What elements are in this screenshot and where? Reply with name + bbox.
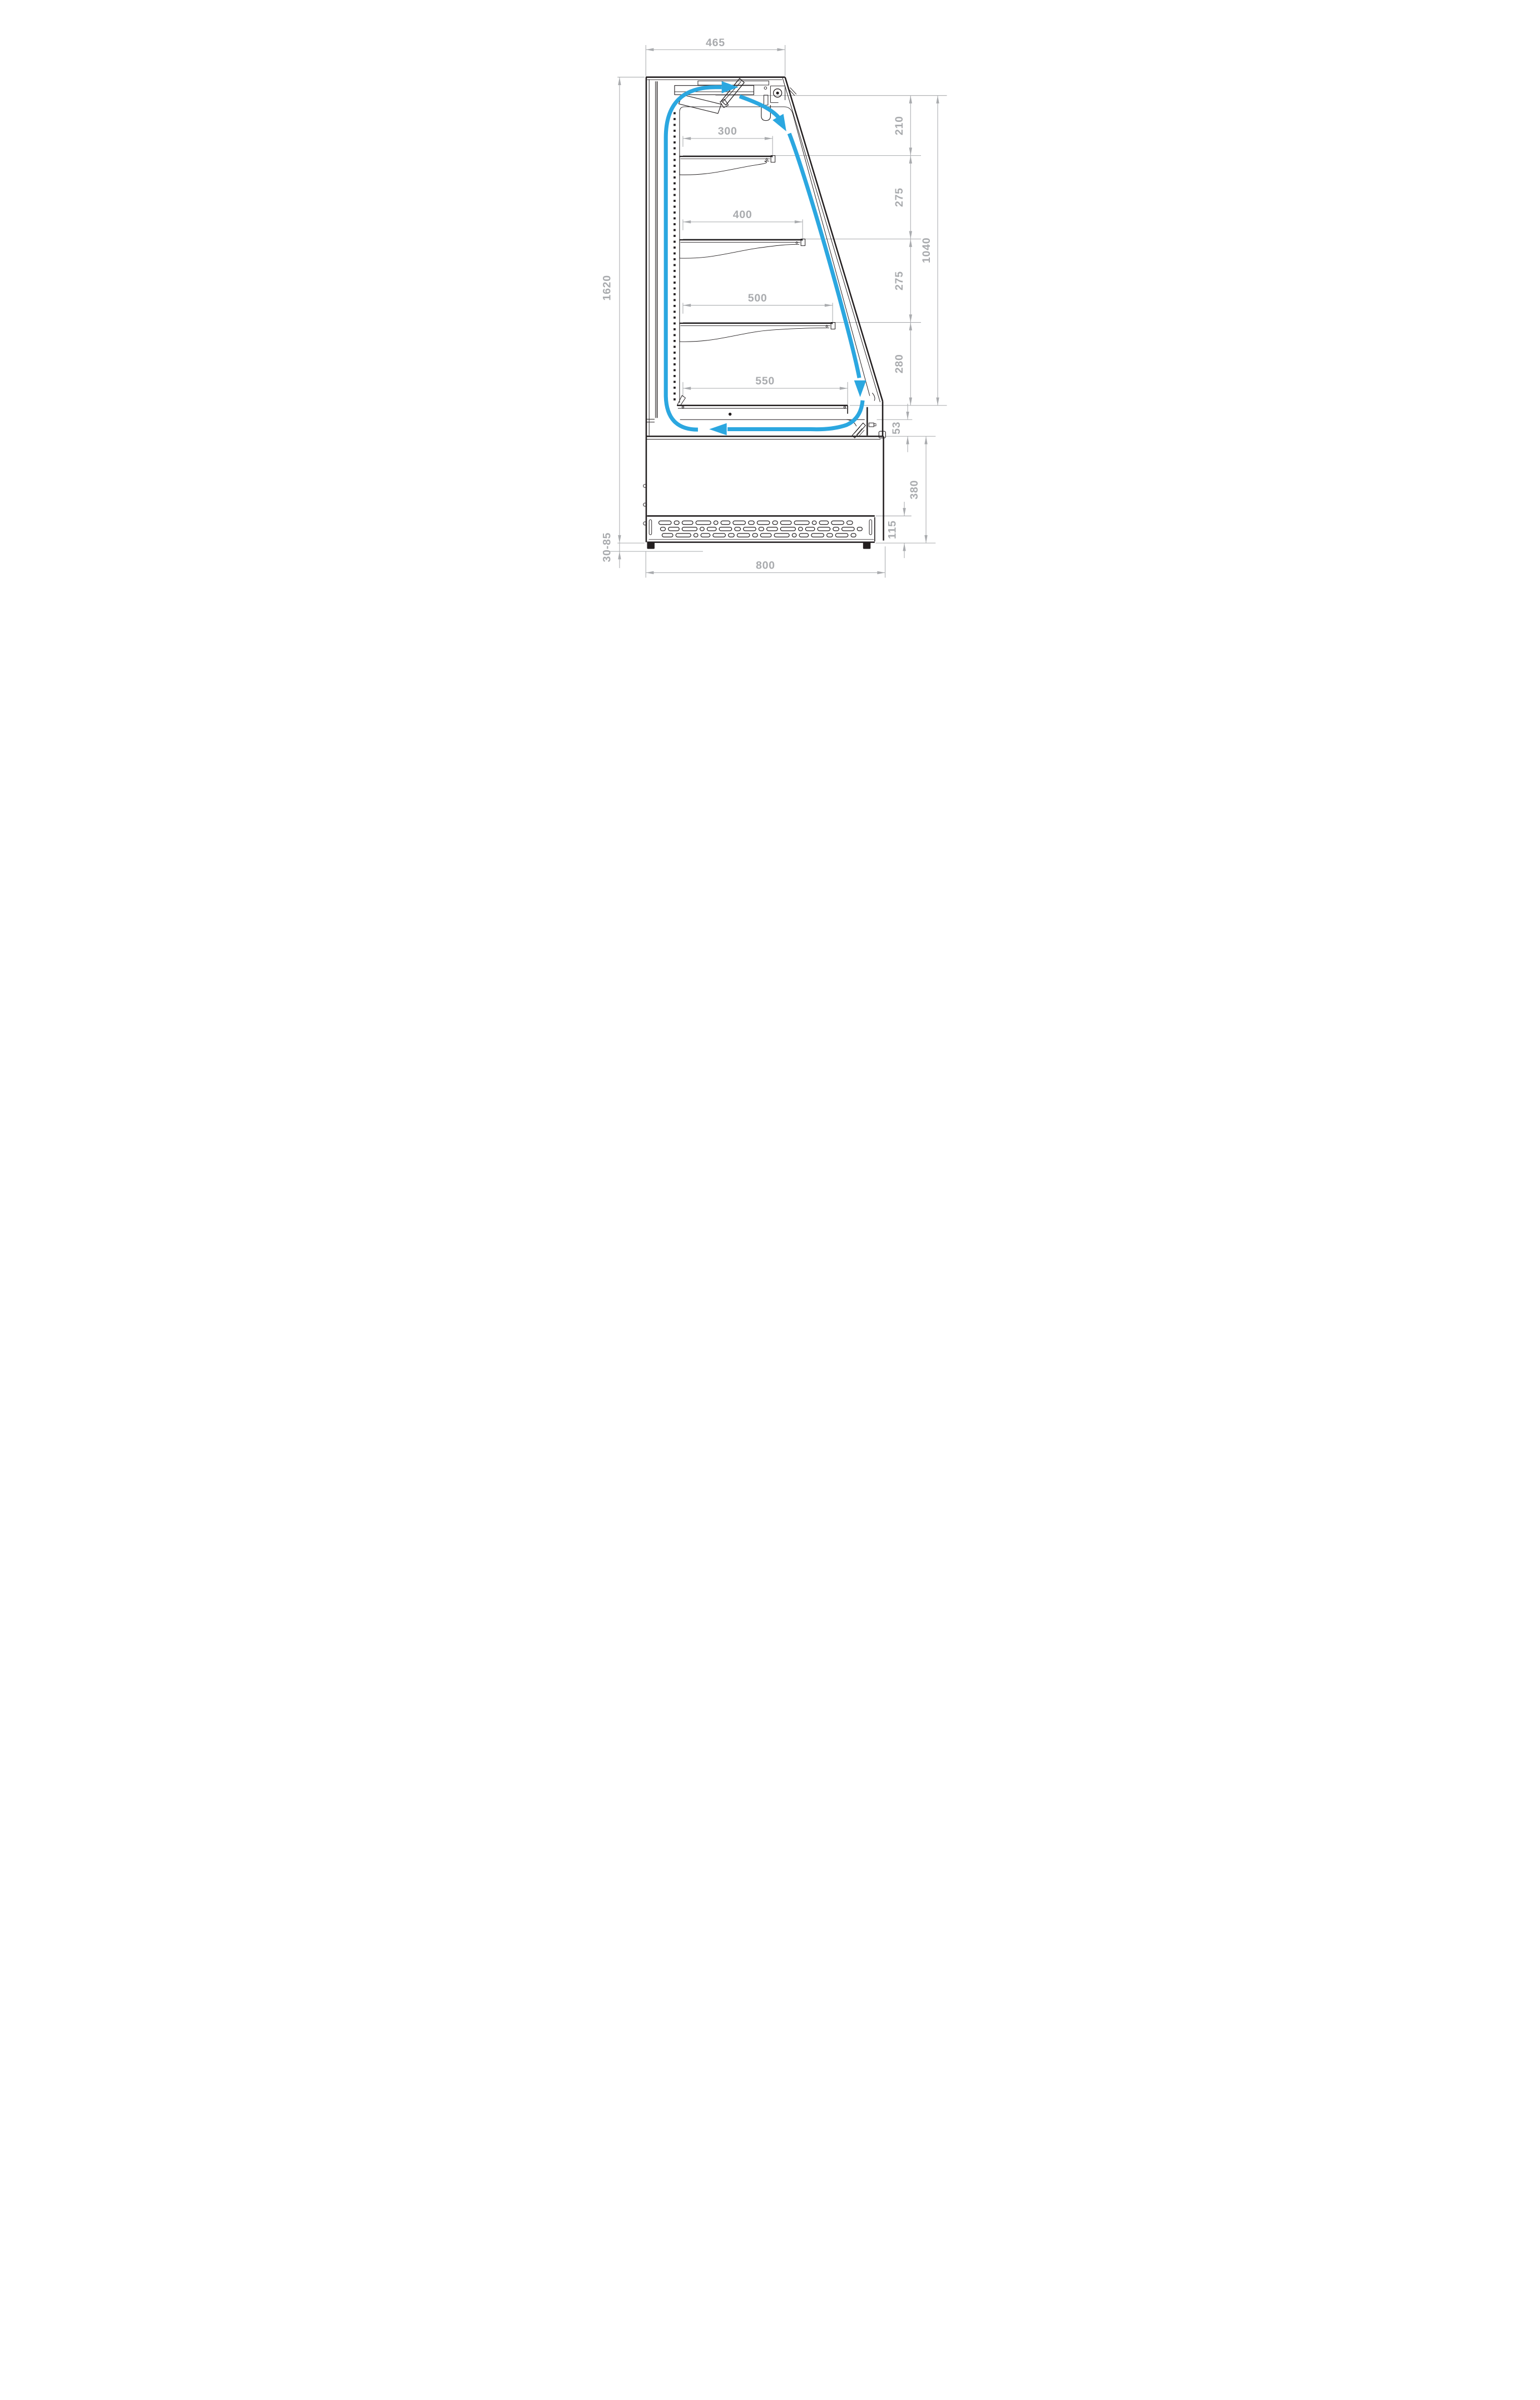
grille-slot	[766, 527, 777, 531]
technical-drawing-canvas: 465 300 400 500 550 800 1620 210 275 275…	[578, 0, 963, 600]
dimension-arrowhead	[909, 231, 912, 239]
grille-slot	[700, 527, 704, 531]
shelf-2-bracket-curve	[679, 244, 799, 258]
dimension-arrowhead	[682, 220, 690, 223]
grille-slot	[658, 521, 671, 524]
grille-slot	[721, 521, 730, 524]
dim-grille-height: 115	[886, 520, 898, 539]
glass-end-trim	[872, 393, 875, 401]
dimension-arrowhead	[906, 436, 909, 444]
grille-handle-left	[649, 520, 651, 535]
grille-slot	[668, 527, 679, 531]
grille-slot	[694, 534, 697, 537]
grille-slot	[792, 534, 796, 537]
grille-slot	[737, 534, 749, 537]
dim-gap-mid1: 275	[893, 187, 905, 207]
grille-slot	[780, 527, 795, 531]
grille-slot	[841, 527, 854, 531]
grille-slot	[857, 527, 862, 531]
shelf-1-bracket-curve	[679, 161, 769, 175]
deck-hinge	[677, 396, 685, 406]
dim-display-opening: 1040	[920, 238, 932, 263]
grille-handle-right	[869, 520, 871, 535]
grille-slot	[712, 534, 725, 537]
grille-slot	[760, 534, 771, 537]
grille-slot	[728, 534, 734, 537]
grille-slot	[674, 521, 679, 524]
grille-slot	[846, 521, 852, 524]
dimension-arrowhead	[794, 220, 802, 223]
grille-slot	[818, 527, 830, 531]
dimension-arrowhead	[936, 397, 939, 405]
dim-shelf2-depth: 400	[732, 209, 752, 221]
dimension-arrowhead	[877, 571, 885, 574]
dimension-arrowhead	[824, 304, 832, 307]
dim-total-height: 1620	[601, 275, 613, 300]
airflow-arrowhead-curtain	[854, 381, 866, 397]
dimension-arrowhead	[682, 137, 690, 140]
dimension-arrowhead	[924, 436, 927, 444]
dim-return-gap: 53	[890, 422, 902, 434]
shelf-3-bracket-curve	[679, 328, 829, 342]
airflow-arrowhead-return	[709, 423, 726, 436]
dimension-arrowhead	[839, 387, 847, 389]
grille-slot	[811, 534, 823, 537]
dimension-arrowhead	[909, 239, 912, 247]
dimension-arrowhead	[618, 535, 621, 543]
grille-slot	[794, 521, 809, 524]
front-bolt	[869, 423, 874, 427]
dim-gap-mid2: 275	[893, 271, 905, 290]
grille-slot	[798, 527, 802, 531]
deck-screw-right	[844, 406, 845, 408]
dim-base-width: 800	[755, 560, 775, 572]
dim-feet-range: 30-85	[601, 532, 613, 562]
dim-shelf1-depth: 300	[717, 125, 737, 137]
grille-slot	[714, 521, 717, 524]
grille-slot	[799, 534, 808, 537]
dim-deck-depth: 550	[755, 375, 775, 387]
dimension-arrowhead	[909, 96, 912, 103]
grille-slot	[696, 521, 711, 524]
grille-slot	[748, 521, 754, 524]
dimension-arrowhead	[646, 48, 653, 51]
grille-slot	[662, 534, 672, 537]
airflow-curtain-path	[789, 134, 859, 378]
dimension-arrowhead	[936, 96, 939, 103]
grille-slot	[773, 521, 778, 524]
dimension-arrowhead	[909, 156, 912, 164]
dimension-arrowhead	[682, 304, 690, 307]
grille-slot	[835, 534, 848, 537]
generated-structure	[658, 156, 862, 537]
fan-hub-center	[776, 92, 779, 95]
dimension-arrowhead	[924, 535, 927, 543]
front-bolt-tip	[874, 424, 876, 426]
grille-slot	[780, 521, 791, 524]
dim-gap-bottom: 280	[893, 354, 905, 373]
grille-slot	[732, 521, 745, 524]
dimension-arrowhead	[906, 412, 909, 419]
dimension-arrowhead	[646, 571, 653, 574]
air-diverter	[679, 95, 721, 113]
dim-base-height: 380	[908, 480, 920, 500]
dim-gap-top: 210	[893, 116, 905, 135]
dimension-arrowhead	[903, 543, 905, 551]
dimension-arrowhead	[909, 323, 912, 330]
dim-top-depth: 465	[706, 37, 725, 49]
drain-dot	[729, 413, 731, 415]
grille-slot	[682, 521, 692, 524]
dimension-arrowhead	[682, 387, 690, 389]
sensor-body	[764, 95, 767, 105]
grille-slot	[774, 534, 789, 537]
grille-slot	[707, 527, 716, 531]
dimension-arrowhead	[618, 551, 621, 559]
grille-slot	[701, 534, 710, 537]
wall-bracket	[646, 419, 655, 422]
foot-right	[863, 542, 870, 549]
dimension-arrowhead	[777, 48, 785, 51]
grille-slot	[752, 534, 757, 537]
inner-liner	[679, 107, 869, 396]
grille-slot	[743, 527, 755, 531]
bracket-bolt	[764, 87, 766, 89]
grille-slot	[831, 521, 843, 524]
dimension-arrowhead	[909, 397, 912, 405]
dimension-arrowhead	[909, 314, 912, 322]
grille-slot	[676, 534, 691, 537]
dim-shelf3-depth: 500	[747, 292, 767, 304]
grille-slot	[682, 527, 697, 531]
dimension-arrowhead	[618, 77, 621, 85]
light-cover	[697, 81, 768, 85]
grille-slot	[660, 527, 665, 531]
grille-slot	[734, 527, 740, 531]
drawing-page: 465 300 400 500 550 800 1620 210 275 275…	[578, 0, 963, 600]
cabinet-structure	[643, 77, 885, 549]
grille-slot	[833, 527, 838, 531]
grille-slot	[812, 521, 816, 524]
grille-slot	[851, 534, 856, 537]
airflow-arrowhead-jet	[773, 114, 786, 131]
grille-slot	[719, 527, 731, 531]
dimension-arrowhead	[903, 508, 905, 516]
grille-slot	[805, 527, 814, 531]
foot-left	[647, 542, 654, 549]
dimension-arrowhead	[909, 147, 912, 155]
dimension-arrowhead	[764, 137, 772, 140]
grille-slot	[759, 527, 764, 531]
grille-slot	[757, 521, 769, 524]
deck-screw-left	[682, 406, 684, 408]
grille-slot	[826, 534, 832, 537]
grille-slot	[819, 521, 828, 524]
